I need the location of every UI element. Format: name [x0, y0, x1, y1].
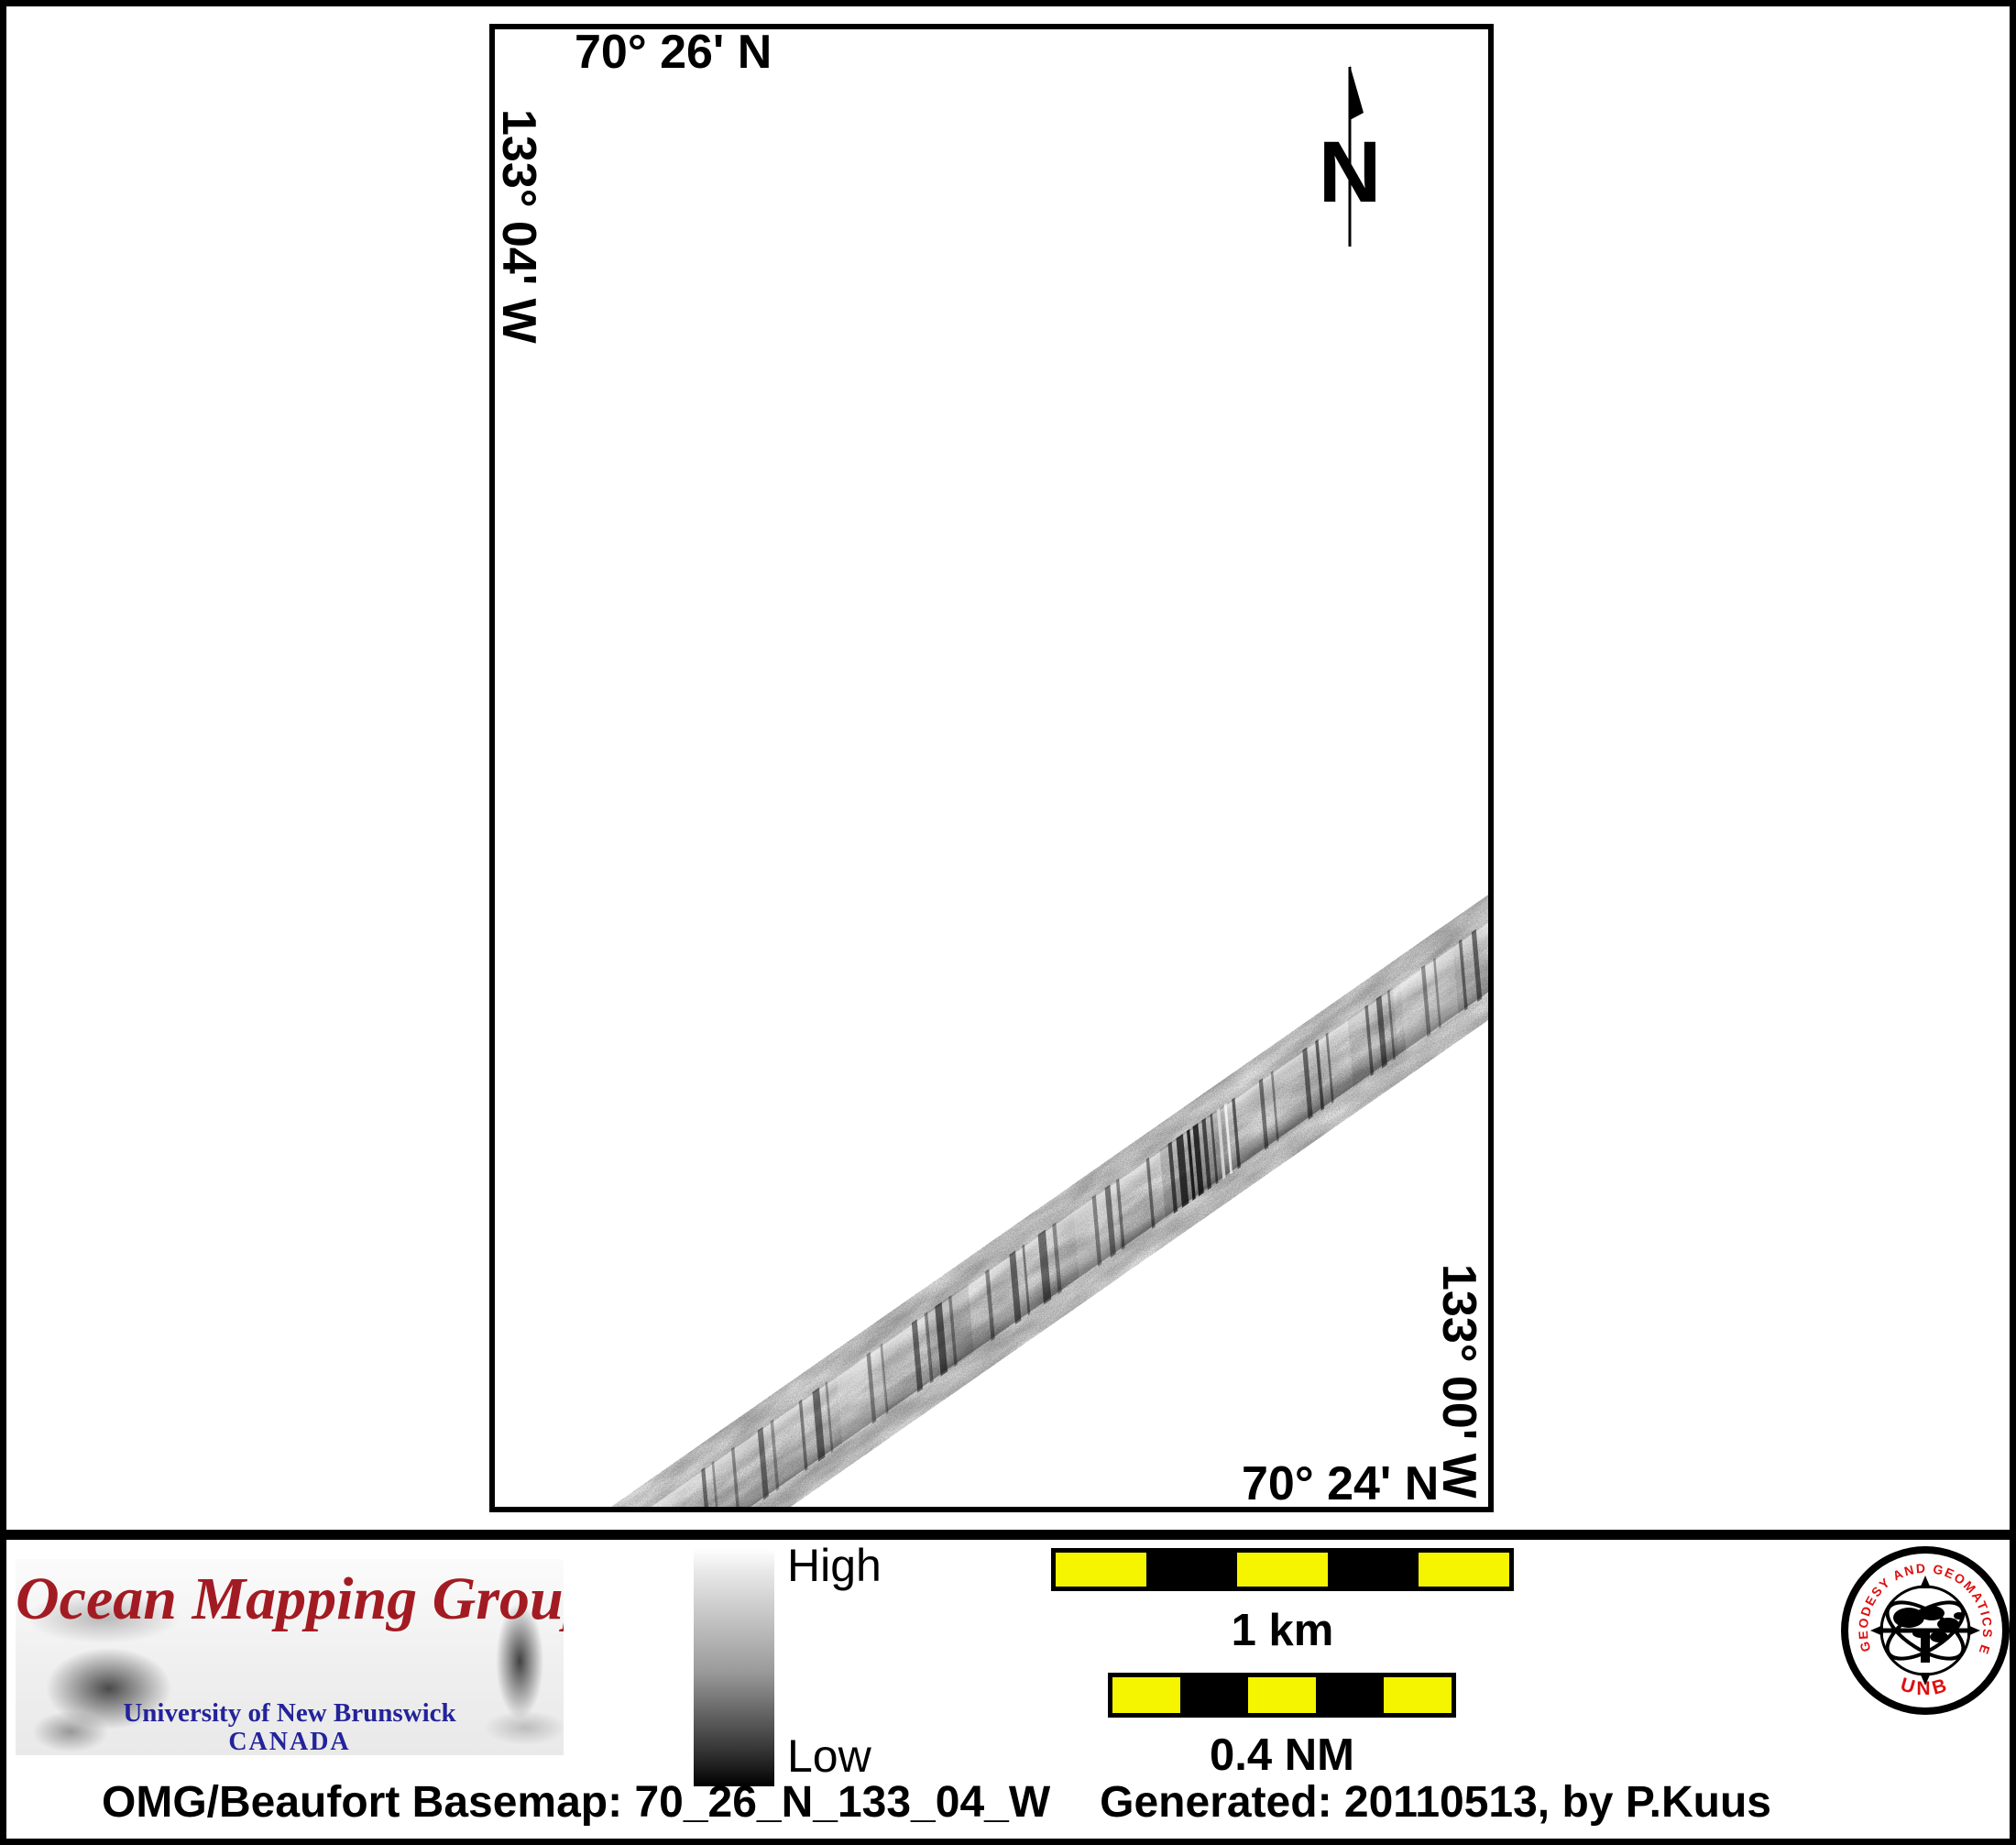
coord-label-right-longitude: 133° 00' W [1435, 1264, 1483, 1499]
omg-banner-country: CANADA [16, 1728, 564, 1755]
scalebar-km-label: 1 km [1051, 1609, 1514, 1653]
scalebar-segment [1384, 1677, 1452, 1713]
omg-banner-title: Ocean Mapping Group [16, 1566, 564, 1633]
caption-basemap: OMG/Beaufort Basemap: 70_26_N_133_04_W [102, 1777, 1050, 1828]
caption-line: OMG/Beaufort Basemap: 70_26_N_133_04_W G… [102, 1777, 1771, 1828]
scalebar-segment [1112, 1677, 1180, 1713]
scalebar-segment [1328, 1553, 1419, 1587]
map-frame [489, 24, 1494, 1512]
caption-generated: Generated: 20110513, by P.Kuus [1100, 1777, 1771, 1828]
seal-unb-text: UNB [1898, 1674, 1952, 1699]
map-sheet: N 70° 26' N 133° 04' W 133° 00' W 70° 24… [0, 0, 2016, 1845]
scalebar-segment [1146, 1553, 1237, 1587]
scalebar-segment [1248, 1677, 1316, 1713]
scalebar-segment [1180, 1677, 1248, 1713]
intensity-colorbar [694, 1548, 774, 1786]
omg-banner: Ocean Mapping Group University of New Br… [16, 1559, 564, 1755]
scalebar-segment [1056, 1553, 1146, 1587]
scalebar-segment [1316, 1677, 1384, 1713]
coord-label-bottom-latitude: 70° 24' N [1242, 1460, 1439, 1508]
scalebar-km [1051, 1548, 1514, 1591]
omg-banner-institution: University of New Brunswick [16, 1698, 564, 1729]
coord-label-left-longitude: 133° 04' W [495, 109, 542, 344]
scalebar-nm [1108, 1673, 1456, 1718]
scalebar-segment [1237, 1553, 1328, 1587]
colorbar-high-label: High [787, 1543, 882, 1588]
footer-divider [6, 1530, 2016, 1540]
scalebar-nm-label: 0.4 NM [1108, 1733, 1456, 1778]
colorbar-low-label: Low [787, 1733, 871, 1779]
unb-geodesy-seal: GEODESY AND GEOMATICS ENGINEERING UNB [1841, 1546, 2010, 1715]
coord-label-top-latitude: 70° 26' N [575, 28, 772, 76]
scalebar-segment [1419, 1553, 1509, 1587]
